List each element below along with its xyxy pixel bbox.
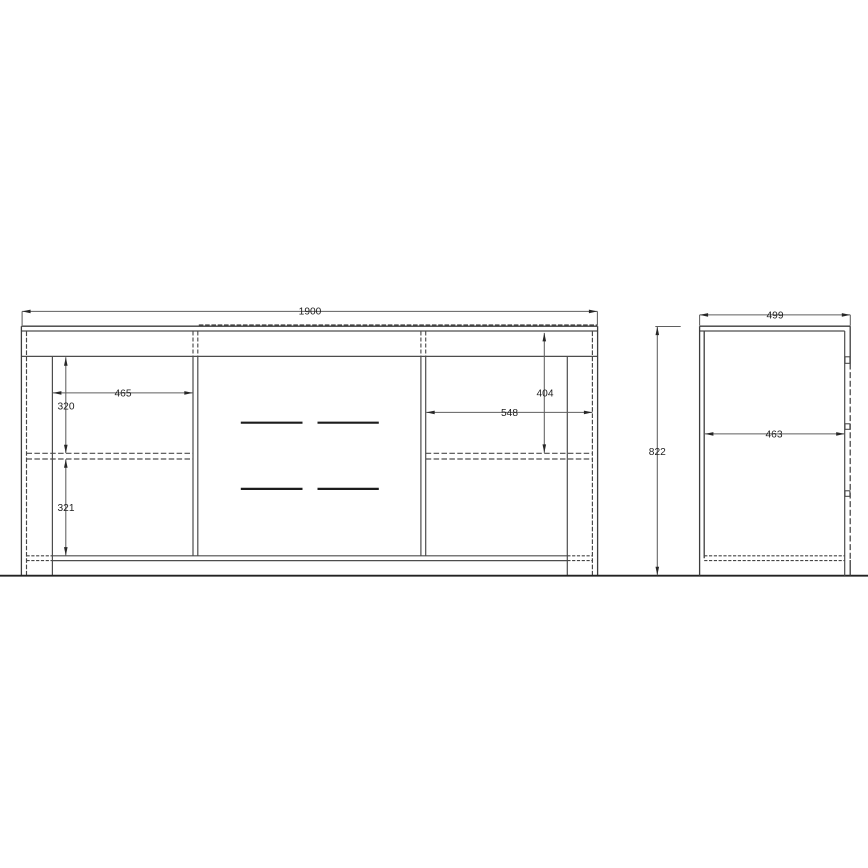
- svg-text:499: 499: [767, 310, 784, 321]
- svg-text:320: 320: [58, 401, 75, 412]
- svg-text:548: 548: [501, 408, 518, 419]
- svg-text:822: 822: [649, 447, 666, 458]
- svg-text:463: 463: [766, 429, 783, 440]
- svg-text:404: 404: [537, 388, 554, 399]
- svg-text:321: 321: [58, 503, 75, 514]
- svg-text:1900: 1900: [299, 306, 322, 317]
- svg-text:465: 465: [115, 388, 132, 399]
